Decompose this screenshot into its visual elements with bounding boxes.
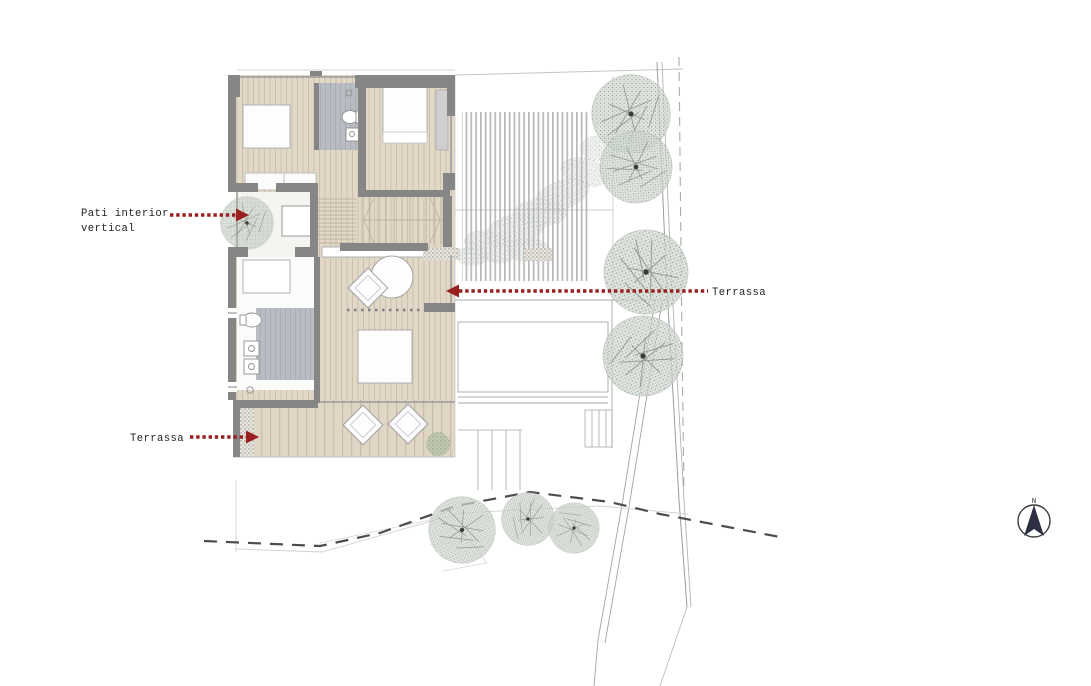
patio-tree	[221, 197, 274, 250]
north-arrow-icon	[1024, 505, 1044, 536]
wardrobe	[436, 90, 448, 150]
annotation-label: Terrassa	[130, 433, 184, 445]
master-bed	[358, 330, 412, 383]
bed-1	[243, 105, 290, 148]
floor-plan-drawing: Pati interior vertical Terrassa Terrassa…	[0, 0, 1091, 686]
gravel-strip	[423, 248, 460, 260]
annotation-label: Pati interior	[81, 208, 169, 220]
patio-planter	[282, 206, 311, 236]
annotation-terrassa-east: Terrassa	[446, 285, 766, 300]
tree	[590, 216, 702, 328]
north-compass: N	[1018, 498, 1050, 537]
dressing-closet	[243, 260, 290, 293]
annotation-label: Terrassa	[712, 287, 766, 299]
gravel-strip	[524, 248, 552, 261]
bathroom-west-tiles	[256, 308, 314, 380]
garden-steps	[458, 410, 612, 490]
terrace-bush	[426, 432, 450, 456]
tree	[545, 499, 603, 557]
annotation-label: vertical	[81, 223, 135, 235]
compass-north-label: N	[1032, 498, 1036, 506]
floor-plan-canvas: Pati interior vertical Terrassa Terrassa…	[0, 0, 1091, 686]
bed-2	[383, 87, 427, 135]
